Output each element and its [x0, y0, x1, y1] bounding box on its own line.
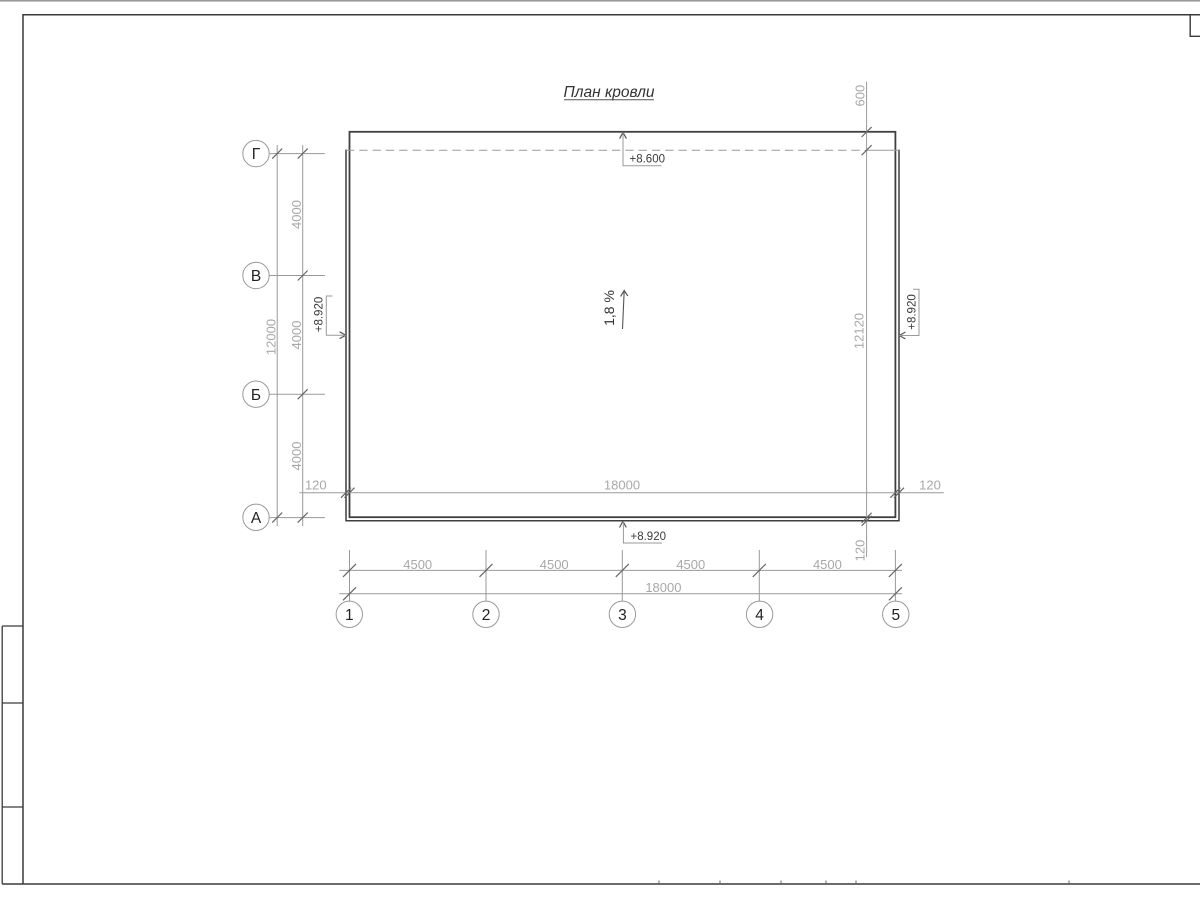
svg-text:12120: 12120 — [851, 313, 866, 349]
svg-text:4500: 4500 — [540, 557, 569, 572]
svg-text:120: 120 — [305, 478, 327, 493]
svg-text:4000: 4000 — [289, 200, 304, 229]
svg-text:+8.920: +8.920 — [631, 531, 667, 543]
svg-text:+8.920: +8.920 — [907, 294, 919, 330]
svg-text:Г: Г — [252, 146, 261, 163]
svg-text:План кровли: План кровли — [564, 84, 655, 101]
svg-text:4000: 4000 — [289, 442, 304, 471]
svg-text:12000: 12000 — [263, 319, 278, 355]
svg-text:5: 5 — [891, 607, 900, 624]
svg-text:1: 1 — [345, 607, 354, 624]
svg-text:4: 4 — [755, 607, 764, 624]
svg-text:Б: Б — [251, 387, 261, 404]
svg-text:А: А — [251, 510, 262, 527]
svg-text:120: 120 — [919, 478, 941, 493]
svg-text:18000: 18000 — [645, 580, 681, 595]
svg-text:3: 3 — [618, 607, 627, 624]
svg-text:4500: 4500 — [813, 557, 842, 572]
svg-text:18000: 18000 — [604, 478, 640, 493]
svg-text:4500: 4500 — [676, 557, 705, 572]
svg-text:+8.600: +8.600 — [630, 154, 666, 166]
svg-text:2: 2 — [482, 607, 491, 624]
svg-text:4500: 4500 — [403, 557, 432, 572]
svg-text:+8.920: +8.920 — [314, 297, 326, 333]
svg-text:В: В — [251, 268, 261, 285]
svg-text:120: 120 — [853, 540, 868, 562]
svg-text:600: 600 — [852, 85, 867, 107]
svg-text:1,8 %: 1,8 % — [601, 290, 617, 326]
svg-text:4000: 4000 — [289, 321, 304, 350]
